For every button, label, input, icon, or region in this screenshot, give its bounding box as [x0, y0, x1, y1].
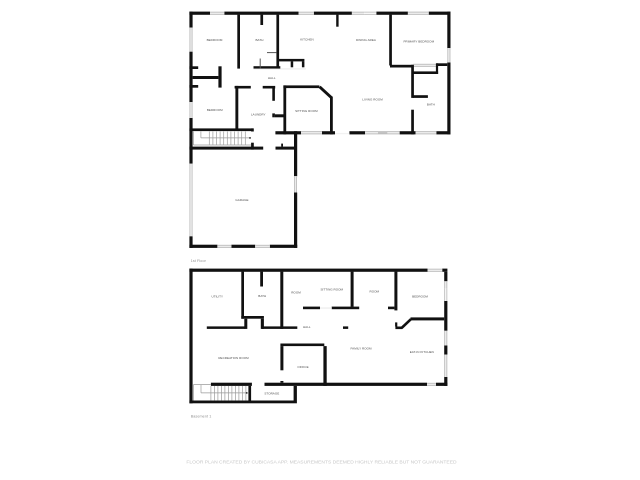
svg-text:BATH: BATH: [258, 294, 266, 298]
svg-text:Basement 1: Basement 1: [191, 415, 212, 419]
svg-text:ROOM: ROOM: [370, 290, 380, 294]
svg-text:LAUNDRY: LAUNDRY: [251, 112, 266, 116]
svg-text:HALL: HALL: [303, 325, 311, 329]
svg-text:BEDROOM: BEDROOM: [412, 295, 428, 299]
svg-text:SITTING ROOM: SITTING ROOM: [295, 109, 318, 113]
svg-text:STORAGE: STORAGE: [264, 392, 279, 396]
svg-text:DINING AREA: DINING AREA: [356, 38, 376, 42]
svg-text:OFFICE: OFFICE: [297, 365, 308, 369]
svg-text:RECREATION ROOM: RECREATION ROOM: [218, 356, 249, 360]
svg-text:EAT-IN KITCHEN: EAT-IN KITCHEN: [410, 350, 434, 354]
svg-text:HALL: HALL: [268, 76, 276, 80]
svg-text:GARAGE: GARAGE: [235, 198, 248, 202]
svg-text:BEDROOM: BEDROOM: [207, 108, 223, 112]
svg-text:1st Floor: 1st Floor: [191, 259, 207, 263]
svg-text:BATH: BATH: [256, 38, 264, 42]
svg-text:PRIMARY BEDROOM: PRIMARY BEDROOM: [403, 39, 434, 43]
svg-text:FAMILY ROOM: FAMILY ROOM: [350, 347, 372, 351]
svg-text:ROOM: ROOM: [291, 291, 301, 295]
svg-text:BEDROOM: BEDROOM: [207, 38, 223, 42]
svg-text:BATH: BATH: [427, 102, 435, 106]
svg-text:LIVING ROOM: LIVING ROOM: [362, 97, 383, 101]
svg-text:KITCHEN: KITCHEN: [300, 38, 314, 42]
svg-text:FLOOR PLAN CREATED BY CUBICASA: FLOOR PLAN CREATED BY CUBICASA APP. MEAS…: [186, 460, 457, 466]
svg-text:SITTING ROOM: SITTING ROOM: [320, 288, 343, 292]
svg-text:UTILITY: UTILITY: [212, 295, 224, 299]
